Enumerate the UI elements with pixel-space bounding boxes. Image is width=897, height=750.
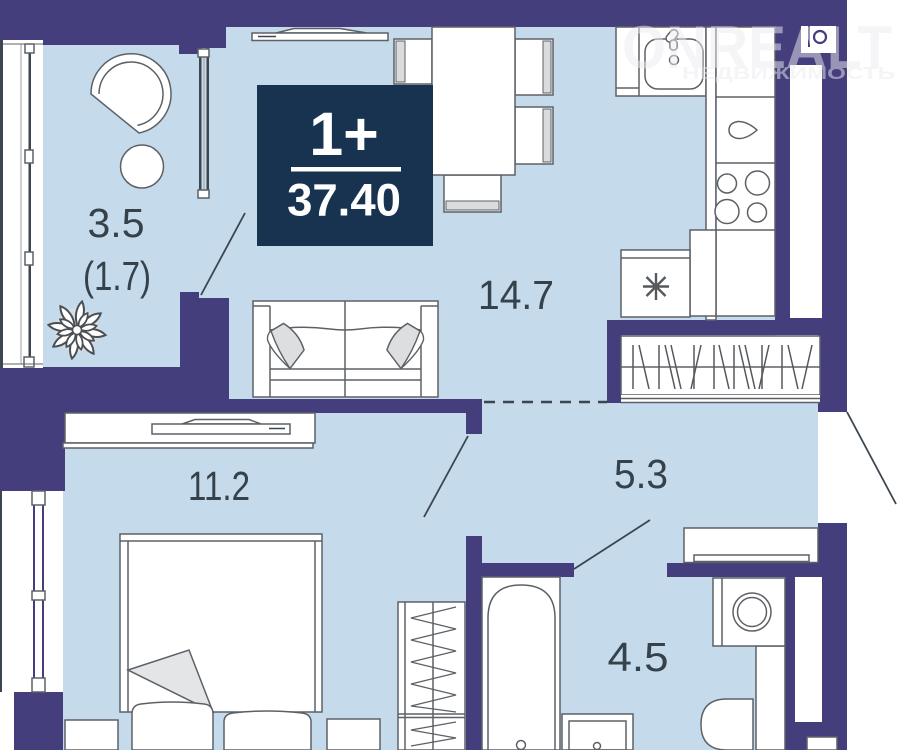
svg-text:5.3: 5.3 (614, 451, 668, 497)
svg-text:НЕДВИЖИМОСТЬ: НЕДВИЖИМОСТЬ (682, 63, 895, 83)
svg-text:4.5: 4.5 (608, 634, 669, 680)
svg-text:14.7: 14.7 (478, 272, 554, 318)
svg-text:37.40: 37.40 (287, 175, 401, 226)
svg-text:1+: 1+ (309, 100, 379, 168)
svg-text:11.2: 11.2 (188, 463, 250, 509)
svg-text:(1.7): (1.7) (83, 253, 151, 299)
svg-text:3.5: 3.5 (88, 200, 145, 246)
